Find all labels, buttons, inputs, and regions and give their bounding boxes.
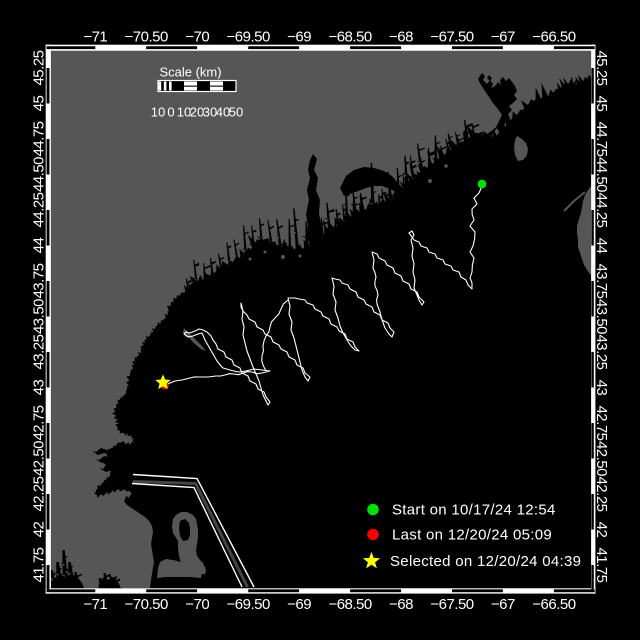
svg-text:43: 43 xyxy=(593,380,610,396)
svg-text:−70.50: −70.50 xyxy=(125,29,168,46)
svg-text:−66.50: −66.50 xyxy=(532,596,575,613)
svg-text:−69.50: −69.50 xyxy=(227,596,270,613)
svg-text:50: 50 xyxy=(229,105,243,120)
svg-text:−70: −70 xyxy=(185,596,209,613)
svg-text:−66.50: −66.50 xyxy=(532,29,575,46)
svg-text:Selected on 12/20/24 04:39: Selected on 12/20/24 04:39 xyxy=(390,553,581,570)
svg-text:45.25: 45.25 xyxy=(31,50,48,85)
svg-text:43.50: 43.50 xyxy=(31,299,48,334)
svg-text:−71: −71 xyxy=(83,29,107,46)
svg-text:42.25: 42.25 xyxy=(593,476,610,511)
svg-text:44.25: 44.25 xyxy=(31,192,48,227)
svg-text:0: 0 xyxy=(167,105,174,120)
svg-text:44: 44 xyxy=(31,238,48,254)
svg-text:44.50: 44.50 xyxy=(593,157,610,192)
svg-text:−70: −70 xyxy=(185,29,209,46)
svg-text:10: 10 xyxy=(151,105,165,120)
svg-text:−68.50: −68.50 xyxy=(328,596,371,613)
svg-text:−69.50: −69.50 xyxy=(227,29,270,46)
svg-text:44.75: 44.75 xyxy=(593,121,610,156)
svg-text:45.25: 45.25 xyxy=(593,50,610,85)
svg-text:−68.50: −68.50 xyxy=(328,29,371,46)
svg-text:43.75: 43.75 xyxy=(31,263,48,298)
svg-text:44: 44 xyxy=(593,238,610,254)
svg-text:43.75: 43.75 xyxy=(593,263,610,298)
svg-text:42.75: 42.75 xyxy=(593,405,610,440)
svg-text:43.50: 43.50 xyxy=(593,299,610,334)
svg-text:−68: −68 xyxy=(389,29,413,46)
svg-text:Last on 12/20/24 05:09: Last on 12/20/24 05:09 xyxy=(392,527,552,544)
svg-text:−67: −67 xyxy=(491,596,515,613)
svg-text:43: 43 xyxy=(31,380,48,396)
svg-text:−69: −69 xyxy=(287,29,311,46)
svg-text:Start on 10/17/24 12:54: Start on 10/17/24 12:54 xyxy=(392,502,556,519)
svg-text:42.25: 42.25 xyxy=(31,476,48,511)
svg-text:−67.50: −67.50 xyxy=(430,29,473,46)
svg-text:43.25: 43.25 xyxy=(31,334,48,369)
svg-text:42.50: 42.50 xyxy=(31,441,48,476)
svg-text:42.75: 42.75 xyxy=(31,405,48,440)
svg-text:42: 42 xyxy=(31,522,48,538)
svg-text:−67: −67 xyxy=(491,29,515,46)
svg-text:44.75: 44.75 xyxy=(31,121,48,156)
svg-text:−70.50: −70.50 xyxy=(125,596,168,613)
svg-text:45: 45 xyxy=(31,96,48,112)
svg-text:42.50: 42.50 xyxy=(593,441,610,476)
svg-text:Scale (km): Scale (km) xyxy=(159,65,221,80)
svg-text:43.25: 43.25 xyxy=(593,334,610,369)
svg-text:−68: −68 xyxy=(389,596,413,613)
svg-text:−67.50: −67.50 xyxy=(430,596,473,613)
svg-text:41.75: 41.75 xyxy=(593,547,610,582)
svg-text:41.75: 41.75 xyxy=(31,547,48,582)
svg-text:45: 45 xyxy=(593,96,610,112)
svg-text:44.50: 44.50 xyxy=(31,157,48,192)
svg-text:44.25: 44.25 xyxy=(593,192,610,227)
svg-text:42: 42 xyxy=(593,522,610,538)
svg-text:−71: −71 xyxy=(83,596,107,613)
svg-text:−69: −69 xyxy=(287,596,311,613)
